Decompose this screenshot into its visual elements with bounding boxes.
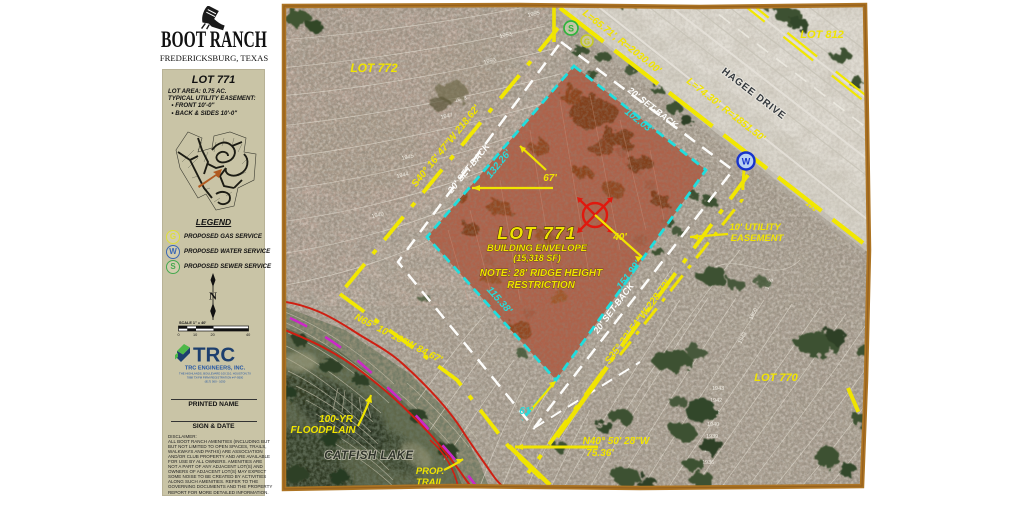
svg-text:1943: 1943 bbox=[712, 386, 724, 392]
svg-text:CATFISH LAKE: CATFISH LAKE bbox=[324, 450, 413, 462]
svg-text:G: G bbox=[584, 38, 590, 47]
svg-text:(15,318 SF): (15,318 SF) bbox=[513, 253, 561, 263]
svg-text:100-YR: 100-YR bbox=[319, 414, 354, 425]
svg-text:LOT 770: LOT 770 bbox=[754, 372, 798, 384]
svg-text:67': 67' bbox=[543, 173, 557, 184]
svg-text:N40° 50' 28"W: N40° 50' 28"W bbox=[583, 436, 651, 447]
svg-text:75.36': 75.36' bbox=[586, 448, 614, 459]
svg-text:PROP.: PROP. bbox=[416, 466, 444, 477]
svg-text:S: S bbox=[568, 24, 574, 34]
svg-text:EASEMENT: EASEMENT bbox=[731, 233, 785, 244]
svg-text:10' UTILITY: 10' UTILITY bbox=[729, 222, 782, 233]
svg-text:LOT 812: LOT 812 bbox=[800, 29, 843, 41]
svg-text:LOT 772: LOT 772 bbox=[350, 61, 398, 75]
svg-text:FLOODPLAIN: FLOODPLAIN bbox=[291, 425, 357, 436]
svg-text:RESTRICTION: RESTRICTION bbox=[507, 280, 576, 291]
svg-text:1940: 1940 bbox=[707, 422, 719, 428]
svg-text:W: W bbox=[742, 157, 751, 167]
svg-text:61': 61' bbox=[519, 406, 533, 417]
svg-text:NOTE: 28' RIDGE HEIGHT: NOTE: 28' RIDGE HEIGHT bbox=[480, 268, 603, 279]
svg-text:40': 40' bbox=[612, 232, 627, 243]
svg-text:LOT 771: LOT 771 bbox=[497, 223, 577, 243]
